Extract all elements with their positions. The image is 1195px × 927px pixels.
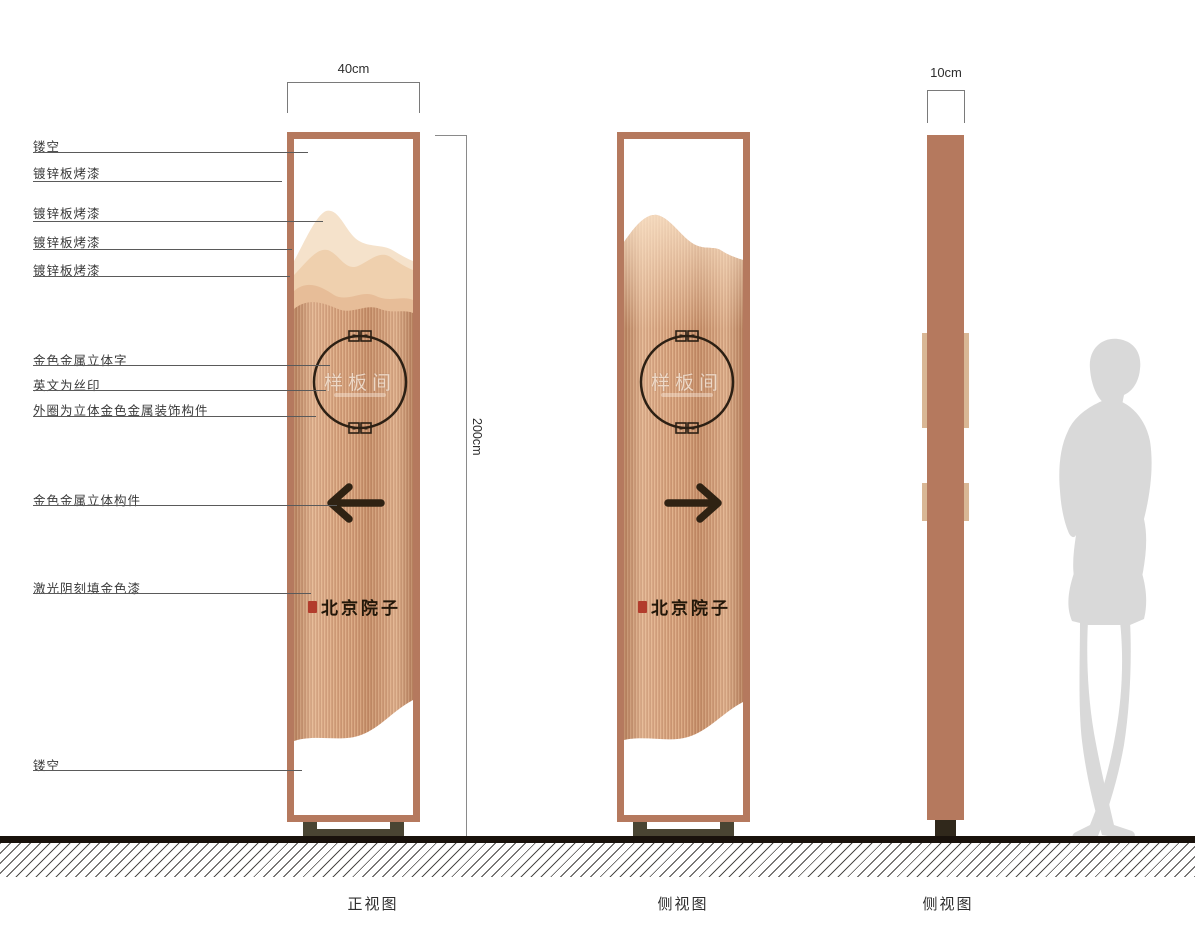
callout-line <box>33 152 308 153</box>
left-arrow-icon <box>325 483 387 523</box>
callout-line <box>33 249 292 250</box>
callout-label: 镀锌板烤漆 <box>33 203 101 222</box>
view-label-front: 正视图 <box>338 893 408 914</box>
callout-label: 镂空 <box>33 755 60 774</box>
callout-line <box>33 505 337 506</box>
callout-line <box>33 181 282 182</box>
red-seal-icon <box>308 601 317 613</box>
view-label-side: 侧视图 <box>648 893 718 914</box>
ground-hatch <box>0 843 1195 877</box>
callout-line <box>33 416 316 417</box>
callout-label: 英文为丝印 <box>33 375 101 394</box>
callout-line <box>33 390 326 391</box>
brand-calligraphy: 北京院子 <box>321 594 401 619</box>
side-profile-column <box>927 135 964 820</box>
room-name-text: 样板间 <box>637 368 737 395</box>
silkscreen-subtext-line <box>661 393 713 397</box>
callout-line <box>33 593 311 594</box>
callout-label: 金色金属立体构件 <box>33 490 141 509</box>
brand-calligraphy: 北京院子 <box>651 594 731 619</box>
callout-line <box>33 770 302 771</box>
red-seal-icon <box>638 601 647 613</box>
depth-dimension-label: 10cm <box>927 65 965 80</box>
right-arrow-icon <box>662 483 724 523</box>
ground-line <box>0 836 1195 843</box>
view-label-side: 侧视图 <box>913 893 983 914</box>
person-silhouette <box>1030 335 1175 848</box>
callout-label: 激光阴刻填金色漆 <box>33 578 141 597</box>
width-dimension-bracket <box>287 82 420 113</box>
height-dimension-line <box>466 135 467 836</box>
width-dimension-label: 40cm <box>287 61 420 76</box>
callout-label: 金色金属立体字 <box>33 350 128 369</box>
height-dimension-label: 200cm <box>470 418 484 456</box>
brand-signature: 北京院子 <box>638 594 731 619</box>
depth-dimension-bracket <box>927 90 965 123</box>
callout-line <box>33 221 323 222</box>
silkscreen-subtext-line <box>334 393 386 397</box>
front-view-graphic <box>294 139 413 815</box>
design-sheet: 镂空 镀锌板烤漆 镀锌板烤漆 镀锌板烤漆 镀锌板烤漆 金色金属立体字 英文为丝印… <box>0 0 1195 927</box>
side-view-graphic <box>624 139 743 815</box>
callout-line <box>33 276 290 277</box>
callout-line <box>33 365 330 366</box>
height-dimension-tick <box>435 135 466 136</box>
mountain-highlight <box>624 215 743 329</box>
brand-signature: 北京院子 <box>308 594 401 619</box>
callout-label: 镀锌板烤漆 <box>33 163 101 182</box>
